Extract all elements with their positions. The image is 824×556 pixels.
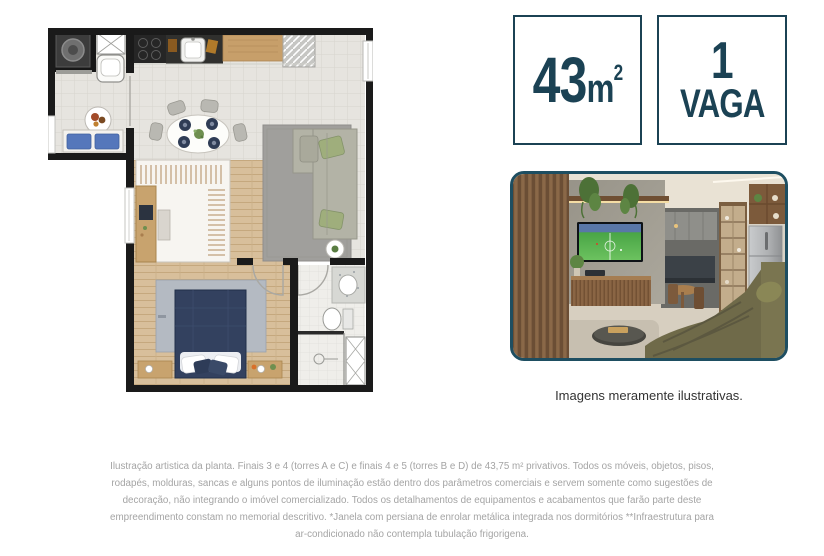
vase <box>574 268 580 276</box>
parking-badge: 1 VAGA <box>657 15 787 145</box>
wood-slat-wall <box>513 174 569 358</box>
shower-partition <box>298 331 344 335</box>
nightstand <box>248 361 282 378</box>
shelf-led <box>569 201 669 203</box>
refrigerator <box>283 35 315 67</box>
backsplash <box>663 256 715 280</box>
bench-cushion <box>67 134 91 149</box>
disclaimer-line: decoração, não integrando o imóvel comer… <box>57 492 767 509</box>
real-estate-unit-section: 43m2 1 VAGA <box>0 0 824 556</box>
apartment-photo <box>510 171 788 361</box>
cooktop <box>134 35 166 63</box>
faucet <box>191 37 195 41</box>
pendant-light <box>674 224 678 228</box>
shower-door <box>346 337 365 385</box>
cutting-board <box>168 39 177 52</box>
sofa-armrest <box>761 262 785 358</box>
lamp <box>145 365 152 372</box>
console-decor <box>585 270 605 276</box>
area-badge: 43m2 <box>513 15 642 145</box>
plant <box>570 255 584 269</box>
tv <box>577 222 643 262</box>
disclaimer-line: empreendimento constam no memorial descr… <box>57 509 767 526</box>
living-room <box>263 125 357 261</box>
parking-badge-text: 1 VAGA <box>680 38 765 123</box>
area-unit: m <box>587 67 614 111</box>
floor-plan-drawing <box>48 28 373 392</box>
disclaimer-line: rodapés, molduras, sancas e alguns ponto… <box>57 475 767 492</box>
wood-counter <box>223 35 283 61</box>
dresser <box>136 186 156 262</box>
toilet <box>323 308 341 330</box>
bench-cushion <box>95 134 119 149</box>
toilet-tank <box>343 309 353 329</box>
plant <box>332 246 339 253</box>
parking-label: VAGA <box>680 86 765 123</box>
counter <box>665 278 715 283</box>
nightstand <box>138 361 172 378</box>
dining-chair <box>694 287 704 309</box>
sofa-cushion <box>319 209 345 230</box>
apartment-photo-render <box>513 174 785 358</box>
balcony-window <box>48 116 55 153</box>
area-value: 43 <box>533 44 587 116</box>
disclaimer-line: Ilustração artistica da planta. Finais 3… <box>57 458 767 475</box>
plant <box>754 194 762 202</box>
laundry-shelf <box>56 70 92 74</box>
area-badge-text: 43m2 <box>533 48 623 112</box>
round-table <box>85 107 111 133</box>
photo-caption: Imagens meramente ilustrativas. <box>510 388 788 403</box>
coffee-table <box>592 326 646 347</box>
plant <box>270 364 276 370</box>
dining-chair <box>200 99 218 113</box>
lamp <box>257 365 264 372</box>
disclaimer-line: ar-condicionado não contempla tubulação … <box>57 526 767 543</box>
dining-chair <box>668 284 678 304</box>
bench-seat <box>158 210 170 240</box>
flowers <box>91 113 99 121</box>
bedroom-tv <box>139 205 153 220</box>
parking-count: 1 <box>680 38 765 86</box>
area-sup: 2 <box>614 60 623 85</box>
bathroom-sink <box>339 275 357 295</box>
dining-chair <box>149 122 164 141</box>
candle <box>252 365 257 370</box>
book <box>608 327 628 333</box>
disclaimer-text: Ilustração artistica da planta. Finais 3… <box>57 458 767 543</box>
floor-plan-illustration <box>48 28 373 392</box>
